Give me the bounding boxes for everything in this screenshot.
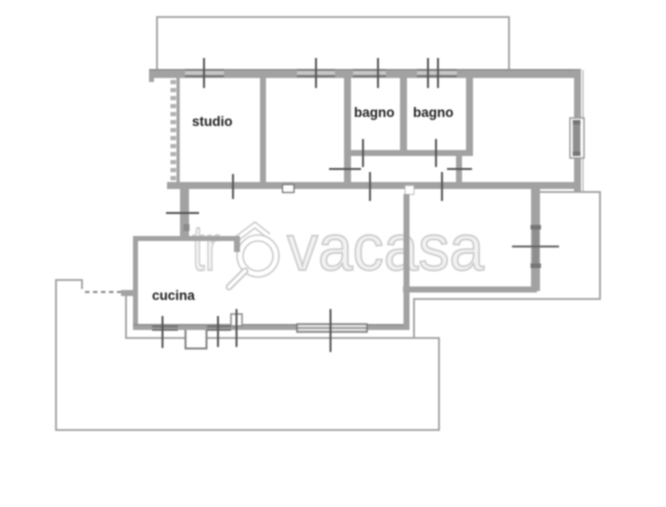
- svg-text:bagno: bagno: [413, 105, 454, 120]
- svg-text:bagno: bagno: [354, 105, 395, 120]
- svg-text:vacasa: vacasa: [287, 211, 485, 284]
- svg-text:tr: tr: [192, 211, 220, 284]
- svg-text:cucina: cucina: [152, 288, 195, 303]
- svg-text:studio: studio: [192, 114, 233, 129]
